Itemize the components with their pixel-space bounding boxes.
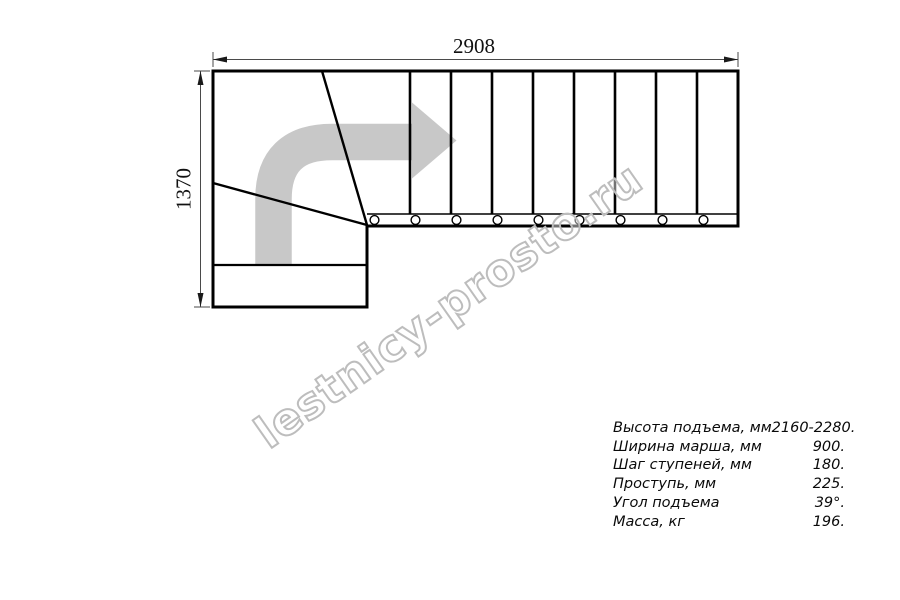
spec-label: Масса, кг xyxy=(613,513,685,532)
spec-row-mass: Масса, кг 196. xyxy=(613,513,845,532)
spec-label: Проступь, мм xyxy=(613,475,716,494)
spec-row-tread: Проступь, мм 225. xyxy=(613,475,845,494)
spec-table: Высота подъема, мм 2160-2280. Ширина мар… xyxy=(613,419,845,531)
left-dimension-label: 1370 xyxy=(172,168,197,210)
spec-value: 39°. xyxy=(815,494,845,513)
staircase-drawing-canvas: 2908 1370 lestnicy-prosto.ru Высота подъ… xyxy=(0,0,900,600)
spec-label: Угол подъема xyxy=(613,494,720,513)
baluster-circles xyxy=(370,216,708,225)
spec-row-flight-width: Ширина марша, мм 900. xyxy=(613,438,845,457)
spec-label: Ширина марша, мм xyxy=(613,438,762,457)
spec-label: Шаг ступеней, мм xyxy=(613,456,752,475)
spec-value: 225. xyxy=(813,475,845,494)
top-dimension-label: 2908 xyxy=(453,34,495,59)
spec-value: 180. xyxy=(813,456,845,475)
spec-row-height: Высота подъема, мм 2160-2280. xyxy=(613,419,845,438)
spec-value: 2160-2280. xyxy=(772,419,856,438)
direction-arrow-icon xyxy=(274,103,457,266)
spec-row-step-pitch: Шаг ступеней, мм 180. xyxy=(613,456,845,475)
spec-value: 196. xyxy=(813,513,845,532)
spec-value: 900. xyxy=(813,438,845,457)
spec-row-angle: Угол подъема 39°. xyxy=(613,494,845,513)
spec-label: Высота подъема, мм xyxy=(613,419,772,438)
